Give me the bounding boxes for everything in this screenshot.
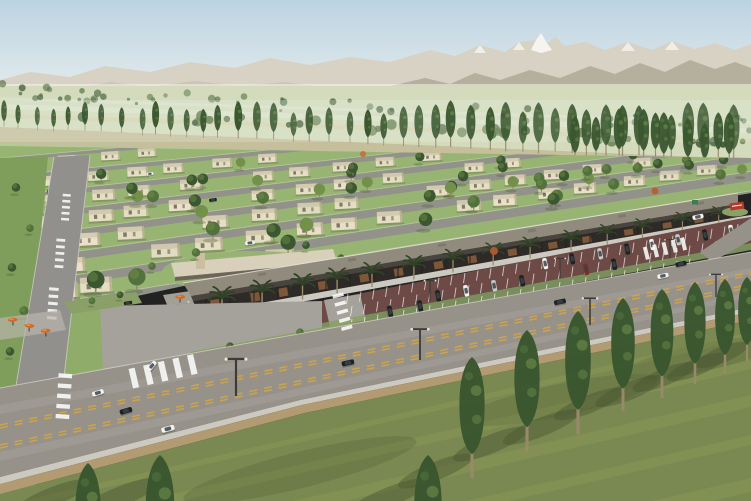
shape — [360, 190, 372, 193]
shape — [27, 225, 31, 229]
shape — [609, 179, 615, 185]
shape — [496, 174, 506, 177]
shape — [583, 167, 589, 173]
shape — [738, 165, 744, 171]
shape — [25, 234, 33, 236]
shape — [535, 173, 541, 179]
distant-tree — [43, 84, 51, 92]
house — [330, 217, 359, 232]
shape — [499, 163, 505, 169]
person — [187, 301, 190, 304]
shape — [190, 195, 197, 202]
shape — [254, 206, 267, 210]
autumn-tree — [490, 247, 498, 255]
shape — [282, 236, 291, 245]
shape — [363, 177, 369, 183]
storefront-window — [250, 292, 260, 302]
shape — [129, 205, 142, 209]
house — [126, 166, 149, 178]
autumn-tree — [360, 151, 366, 157]
shape — [184, 187, 195, 190]
house — [382, 172, 405, 185]
shape — [10, 194, 19, 197]
shape — [234, 169, 244, 172]
shape — [545, 207, 558, 211]
shape — [713, 182, 724, 185]
shape — [83, 292, 102, 297]
shape — [465, 210, 478, 214]
shape — [416, 153, 421, 158]
shape — [606, 192, 618, 195]
shape — [631, 175, 642, 178]
shape — [627, 161, 637, 164]
house — [212, 158, 234, 170]
shape — [654, 159, 659, 164]
shape — [346, 175, 357, 178]
shape — [12, 184, 17, 189]
shape — [343, 196, 355, 199]
house — [464, 162, 486, 174]
shape — [497, 156, 502, 161]
shape — [580, 178, 591, 181]
shape — [297, 329, 301, 333]
distant-tree — [241, 93, 248, 100]
storefront-window — [467, 255, 477, 264]
shape — [6, 348, 11, 353]
shape — [192, 221, 206, 225]
distant-tree — [147, 94, 153, 100]
house — [375, 157, 396, 168]
house — [296, 202, 323, 217]
distant-tree — [19, 92, 23, 96]
house — [162, 163, 184, 175]
shape — [446, 183, 452, 189]
shape — [716, 170, 722, 176]
shape — [534, 192, 546, 195]
shape — [89, 298, 93, 302]
house — [137, 147, 157, 158]
shape — [149, 263, 153, 267]
shape — [129, 269, 139, 279]
shape — [548, 194, 555, 201]
autumn-tree — [652, 188, 659, 195]
shape — [633, 164, 639, 170]
shape — [303, 242, 307, 246]
shape — [685, 161, 690, 166]
shape — [196, 206, 203, 213]
house — [251, 208, 279, 223]
shape — [264, 240, 279, 244]
shape — [651, 170, 661, 173]
shape — [421, 204, 434, 208]
shape — [207, 222, 215, 230]
storefront-window — [394, 268, 404, 277]
shape — [258, 192, 265, 199]
shape — [203, 238, 218, 242]
shape — [250, 188, 262, 191]
shape — [301, 251, 309, 253]
shape — [145, 205, 158, 209]
shape — [127, 183, 133, 189]
house — [91, 189, 116, 203]
shape — [559, 171, 565, 177]
shape — [682, 172, 692, 175]
shape — [416, 229, 430, 233]
shape — [537, 179, 543, 185]
aerial-render — [0, 0, 751, 501]
distant-tree — [163, 93, 167, 97]
shape — [4, 358, 13, 361]
shape — [88, 272, 98, 282]
shape — [253, 176, 259, 182]
shape — [117, 292, 121, 296]
house — [257, 153, 278, 164]
shape — [442, 196, 454, 199]
shape — [195, 186, 206, 189]
house — [376, 211, 404, 226]
shape — [420, 214, 428, 222]
house — [659, 170, 682, 182]
utility-box — [692, 200, 698, 205]
shape — [459, 172, 465, 178]
shape — [301, 219, 309, 227]
shape — [187, 175, 193, 181]
shape — [297, 234, 312, 238]
shape — [346, 183, 352, 189]
distant-tree — [184, 89, 191, 96]
shape — [581, 186, 592, 189]
shape — [87, 306, 94, 308]
shape — [468, 196, 475, 203]
shape — [124, 196, 136, 199]
shape — [456, 184, 467, 187]
shape — [190, 259, 199, 262]
shape — [600, 176, 611, 179]
shape — [267, 224, 275, 232]
storefront-window — [278, 287, 288, 297]
house — [150, 243, 182, 260]
shape — [505, 189, 517, 192]
distant-tree — [39, 93, 42, 96]
distant-tree — [79, 88, 85, 94]
shape — [311, 197, 323, 200]
distant-tree — [94, 90, 101, 97]
shape — [20, 307, 25, 312]
shape — [602, 165, 608, 171]
shape — [413, 163, 423, 166]
shape — [6, 274, 15, 277]
shape — [198, 174, 204, 180]
shape — [349, 163, 355, 169]
shape — [237, 158, 242, 163]
house — [288, 166, 311, 178]
shape — [344, 180, 355, 183]
shape — [192, 249, 197, 254]
shape — [315, 184, 321, 190]
shape — [556, 183, 567, 186]
shape — [115, 300, 122, 302]
house — [334, 197, 360, 211]
house — [696, 165, 718, 177]
shape — [735, 176, 746, 179]
shape — [148, 191, 155, 198]
shape — [508, 177, 514, 183]
house — [88, 209, 116, 224]
shape — [97, 169, 103, 175]
house — [100, 151, 121, 162]
shape — [94, 181, 105, 184]
shape — [8, 264, 13, 269]
house — [492, 194, 518, 208]
shape — [425, 191, 432, 198]
distant-tree — [19, 84, 26, 91]
house — [469, 179, 493, 192]
house — [117, 226, 147, 242]
distant-tree — [100, 93, 107, 100]
storefront-window — [433, 261, 443, 270]
render-canvas — [0, 0, 751, 501]
shape — [147, 272, 155, 274]
shape — [717, 166, 727, 169]
